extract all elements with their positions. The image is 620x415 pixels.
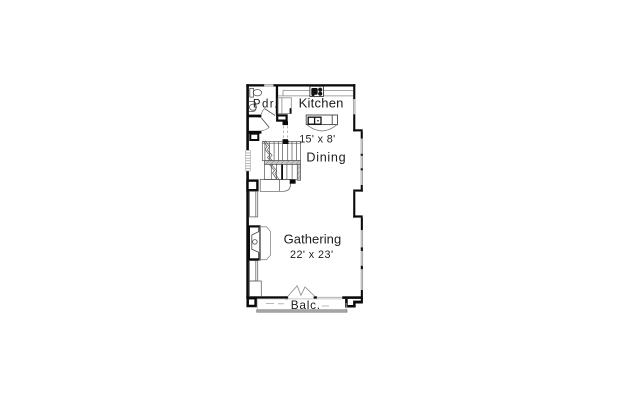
svg-text:Dining: Dining [306, 151, 345, 165]
svg-text:Pdr.: Pdr. [253, 99, 278, 111]
svg-text:Gathering: Gathering [284, 232, 342, 247]
svg-text:Kitchen: Kitchen [299, 95, 344, 110]
svg-text:Balc.: Balc. [291, 298, 320, 312]
svg-text:22' x 23': 22' x 23' [290, 249, 333, 261]
svg-text:15' x 8': 15' x 8' [299, 134, 335, 146]
